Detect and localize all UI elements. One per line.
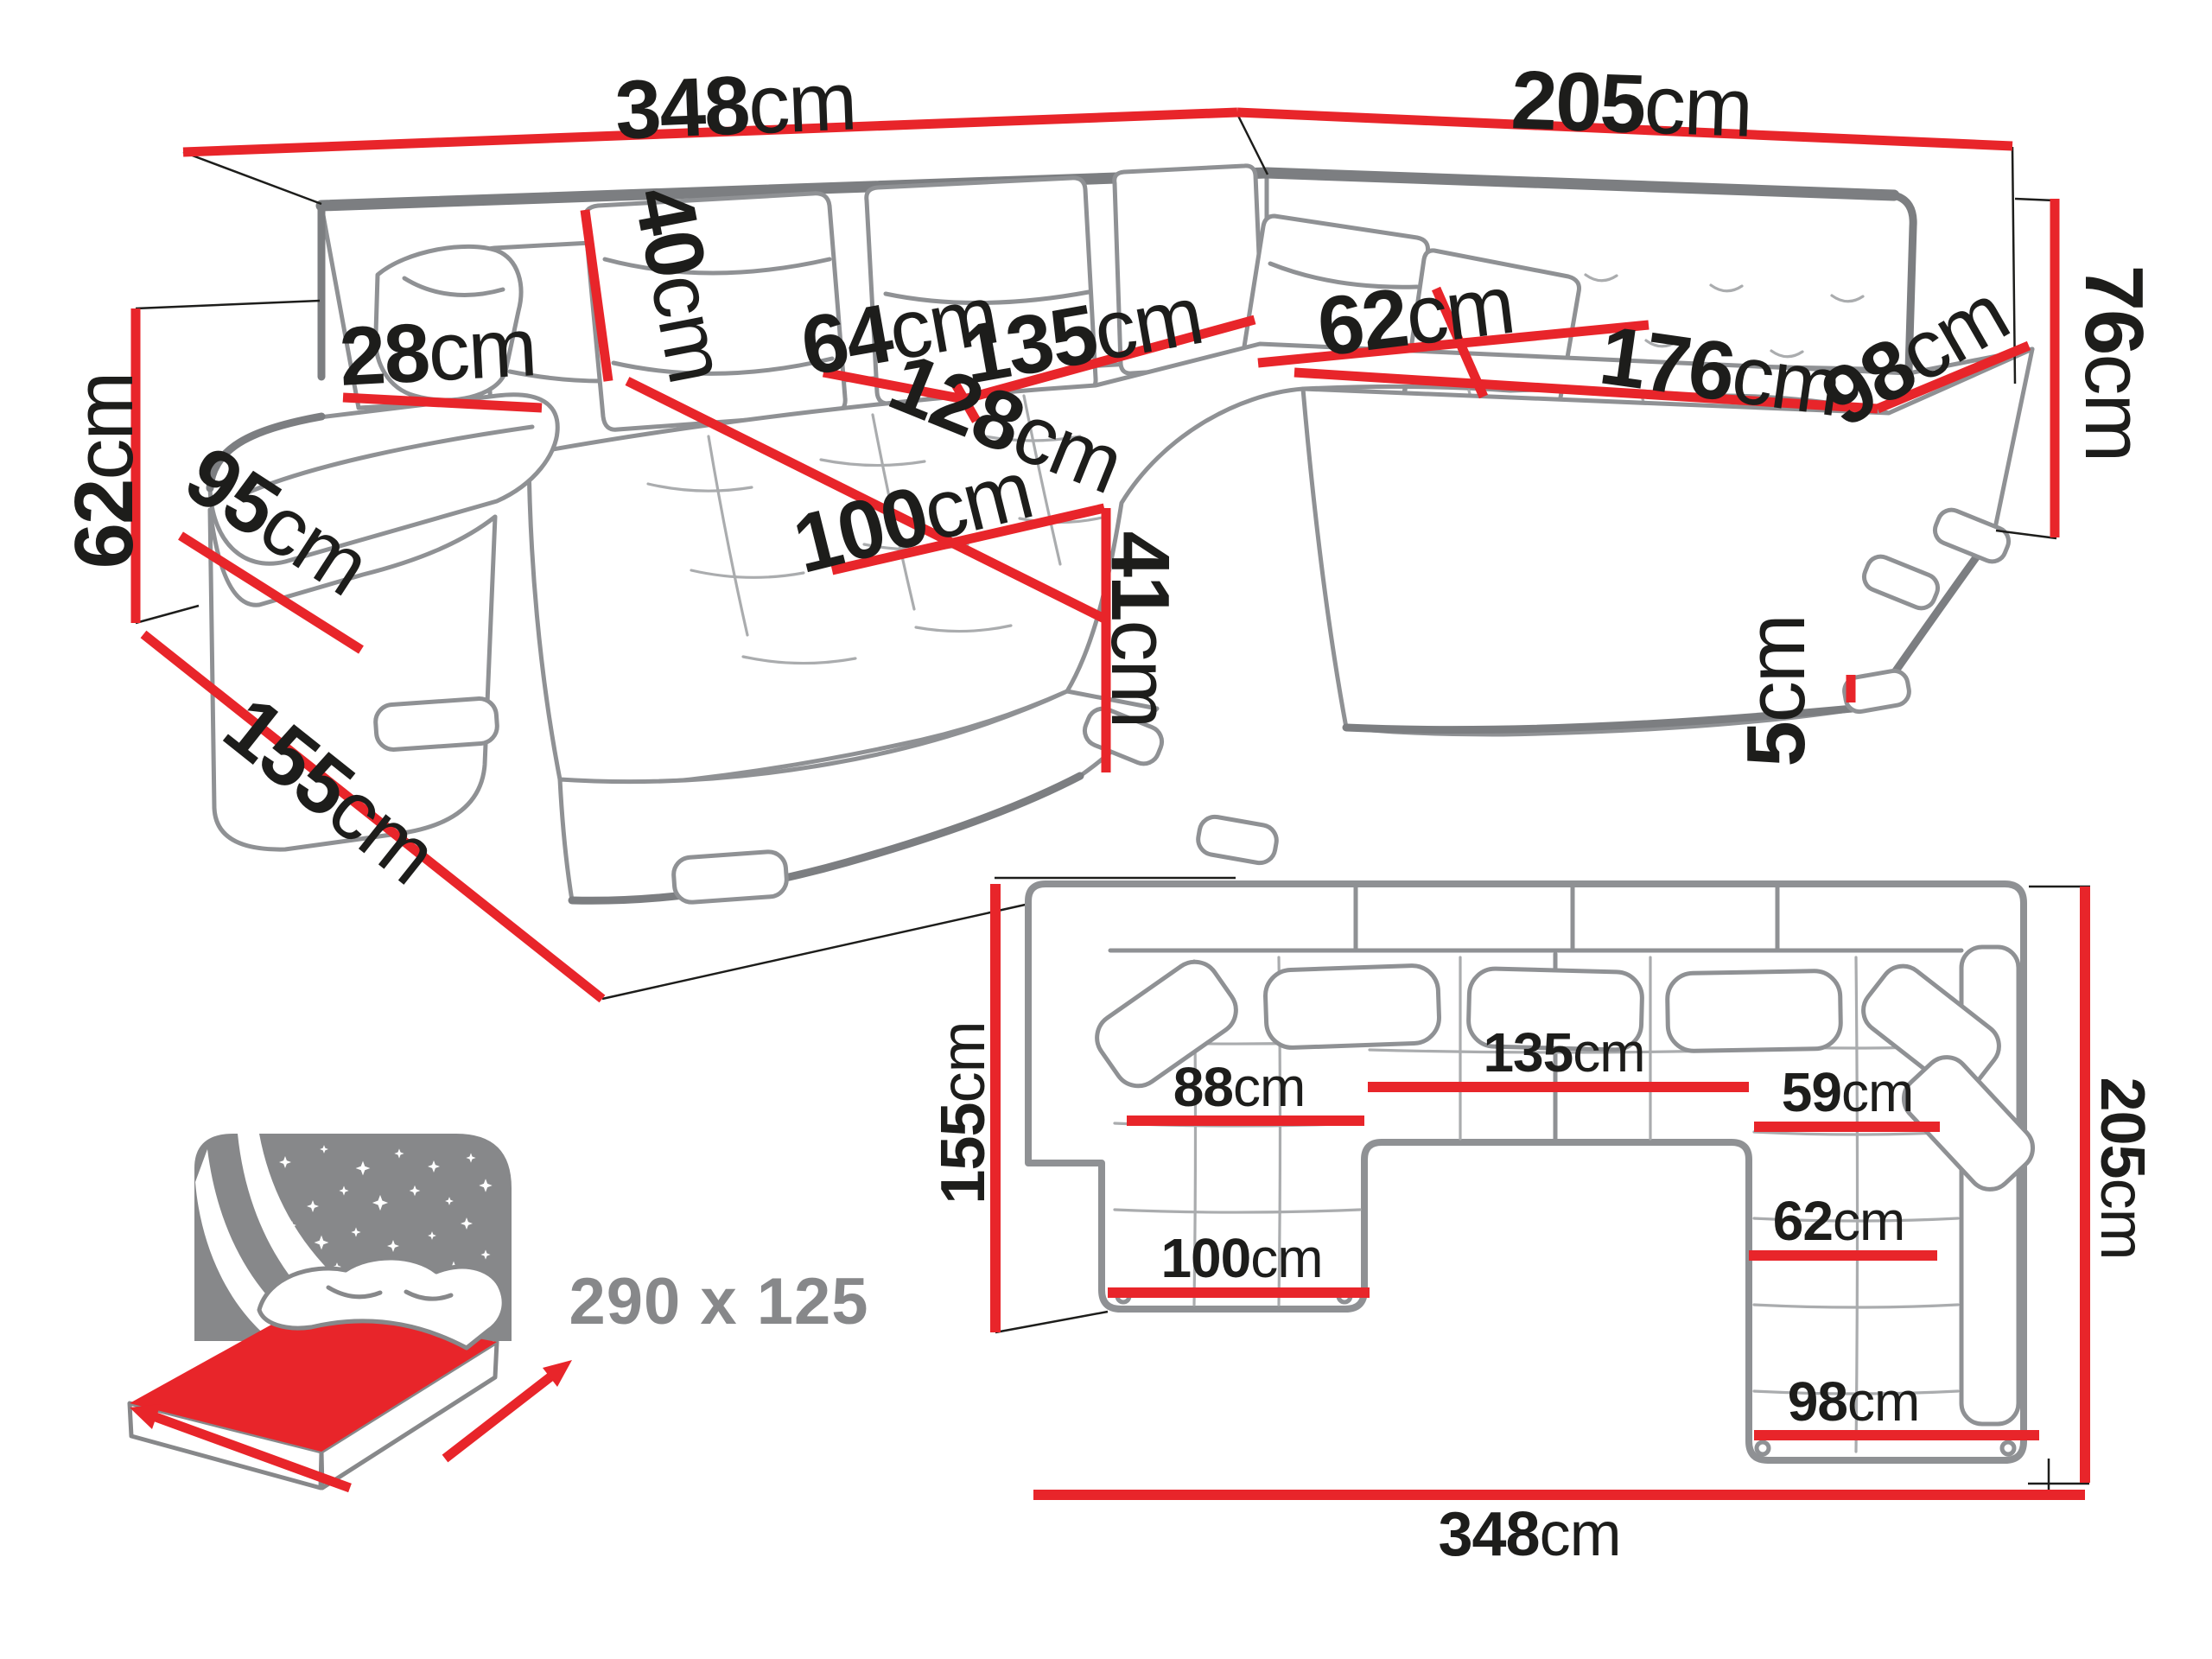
- plan-view: 155cm 205cm 348cm 88cm 135cm 59cm 62cm 1…: [929, 878, 2157, 1569]
- sofa-foot: [672, 851, 787, 904]
- dim-label-59: 59cm: [1782, 1061, 1914, 1123]
- dim-label-205: 205cm: [1510, 54, 1753, 155]
- sofa-foot: [374, 697, 498, 751]
- dim-label-348: 348cm: [613, 54, 857, 156]
- dim-label-5: 5cm: [1730, 615, 1822, 766]
- dim-label-28: 28cm: [337, 301, 537, 404]
- pillow: [1667, 970, 1841, 1051]
- dim-label-62-left: 62cm: [58, 373, 150, 569]
- dim-label-88: 88cm: [1173, 1056, 1306, 1118]
- sofa-dimension-diagram: 348cm 205cm 76cm 62cm 95cm 155cm 28cm 40…: [0, 0, 2212, 1659]
- dim-label-98-plan: 98cm: [1788, 1370, 1920, 1433]
- dim-label-41: 41cm: [1094, 531, 1186, 728]
- dim-label-155-plan: 155cm: [929, 1021, 998, 1204]
- dim-label-205-plan: 205cm: [2088, 1077, 2157, 1259]
- sofa-foot: [1196, 815, 1279, 866]
- dim-label-100-plan: 100cm: [1160, 1227, 1322, 1289]
- perspective-view: 348cm 205cm 76cm 62cm 95cm 155cm 28cm 40…: [58, 54, 2160, 999]
- dim-label-135-plan: 135cm: [1483, 1021, 1644, 1084]
- pillow: [1264, 965, 1440, 1049]
- sleeping-area-size-label: 290 x 125: [569, 1265, 868, 1338]
- sleeping-area-icon: 290 x 125: [130, 1134, 869, 1488]
- dim-label-348-plan: 348cm: [1438, 1500, 1620, 1569]
- dim-label-76: 76cm: [2068, 265, 2160, 461]
- dim-label-62-plan: 62cm: [1773, 1190, 1905, 1252]
